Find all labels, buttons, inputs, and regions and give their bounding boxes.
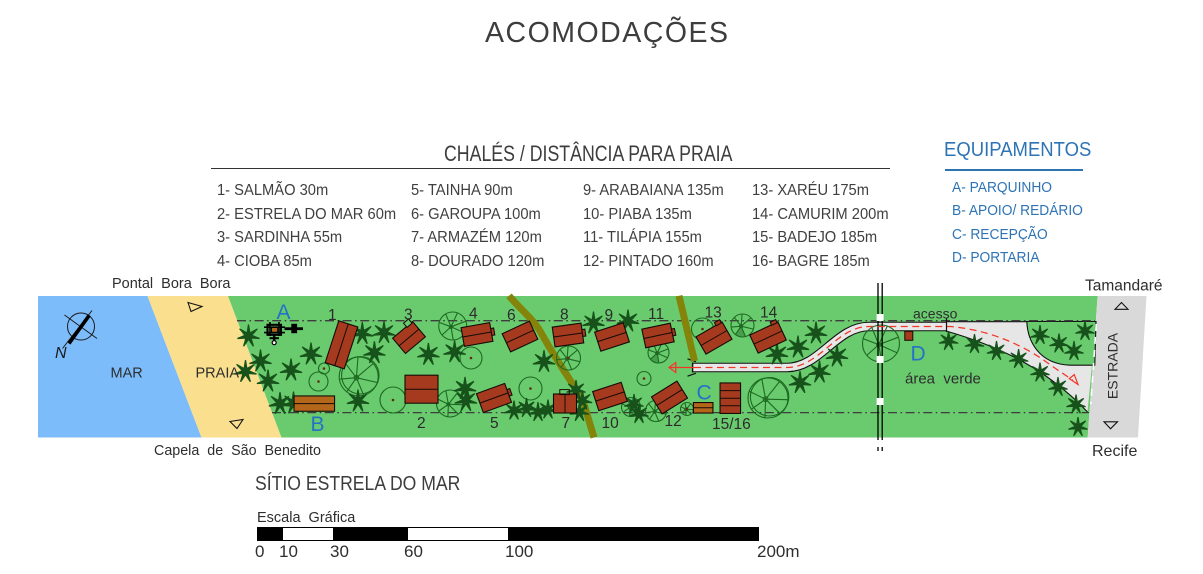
- svg-text:3: 3: [404, 307, 413, 324]
- svg-text:Capela de São Benedito: Capela de São Benedito: [154, 443, 321, 459]
- svg-text:A: A: [277, 301, 291, 324]
- svg-text:7: 7: [562, 415, 571, 432]
- svg-text:B: B: [311, 413, 325, 436]
- svg-text:8: 8: [560, 307, 569, 324]
- svg-text:D: D: [911, 343, 926, 366]
- svg-text:área verde: área verde: [905, 371, 981, 388]
- svg-text:PRAIA: PRAIA: [196, 366, 240, 382]
- svg-text:1: 1: [328, 307, 337, 324]
- svg-text:2: 2: [417, 415, 426, 432]
- svg-text:14: 14: [760, 305, 778, 322]
- svg-text:acesso: acesso: [913, 306, 958, 322]
- svg-text:N: N: [55, 345, 67, 362]
- svg-text:5: 5: [490, 415, 499, 432]
- svg-text:15/16: 15/16: [712, 416, 751, 433]
- svg-text:12: 12: [665, 413, 682, 430]
- svg-text:ESTRADA: ESTRADA: [1105, 332, 1121, 399]
- svg-text:4: 4: [469, 306, 478, 323]
- svg-text:11: 11: [648, 306, 664, 323]
- svg-text:C: C: [697, 382, 712, 405]
- svg-text:9: 9: [605, 307, 614, 324]
- svg-text:10: 10: [602, 415, 620, 432]
- svg-text:Pontal Bora Bora: Pontal Bora Bora: [112, 276, 231, 292]
- svg-text:Tamandaré: Tamandaré: [1085, 278, 1163, 295]
- svg-text:6: 6: [507, 307, 516, 324]
- svg-text:13: 13: [705, 305, 722, 322]
- svg-text:MAR: MAR: [111, 366, 143, 382]
- svg-text:Recife: Recife: [1092, 443, 1137, 460]
